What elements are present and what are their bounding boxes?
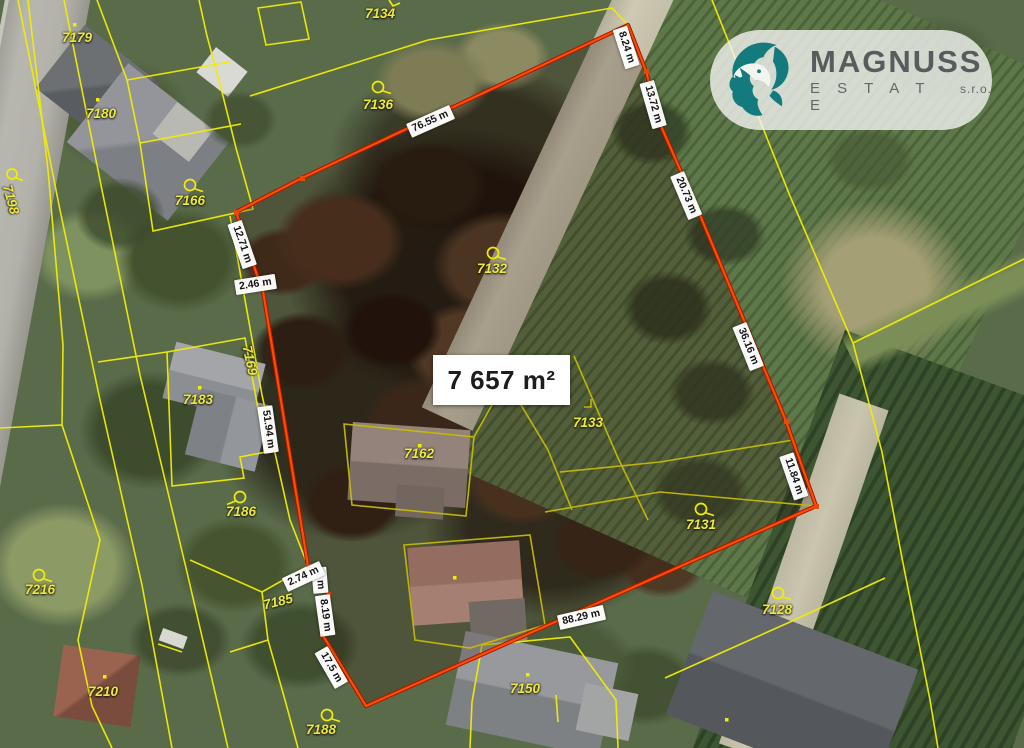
parcel-number: 7162 [404, 446, 434, 461]
parcel-number: 7216 [25, 582, 55, 597]
logo-estate: E S T A T E [810, 80, 952, 114]
parcel-number: 7150 [510, 681, 540, 696]
parcel-number: 7134 [365, 6, 395, 21]
logo-name: MAGNUSS [810, 46, 992, 77]
parcel-number: 7188 [306, 722, 336, 737]
parcel-number: 7183 [183, 392, 213, 407]
area-label: 7 657 m² [433, 355, 570, 405]
parcel-number: 7131 [686, 517, 716, 532]
parcel-number: 7210 [88, 684, 118, 699]
lion-icon [724, 38, 808, 122]
logo-suffix: s.r.o. [960, 82, 992, 96]
logo: MAGNUSS E S T A T E s.r.o. [710, 30, 992, 130]
map-canvas: 76.55 m 8.24 m 13.72 m 20.73 m 36.16 m 1… [0, 0, 1024, 748]
parcel-number: 7132 [477, 261, 507, 276]
parcel-number: 7128 [762, 602, 792, 617]
parcel-number: 7179 [62, 30, 92, 45]
parcel-number: 7180 [86, 106, 116, 121]
logo-text: MAGNUSS E S T A T E s.r.o. [810, 46, 992, 114]
parcel-number: 7186 [226, 504, 256, 519]
parcel-number: 7166 [175, 193, 205, 208]
parcel-number: 7136 [363, 97, 393, 112]
parcel-number: 7133 [573, 415, 603, 430]
